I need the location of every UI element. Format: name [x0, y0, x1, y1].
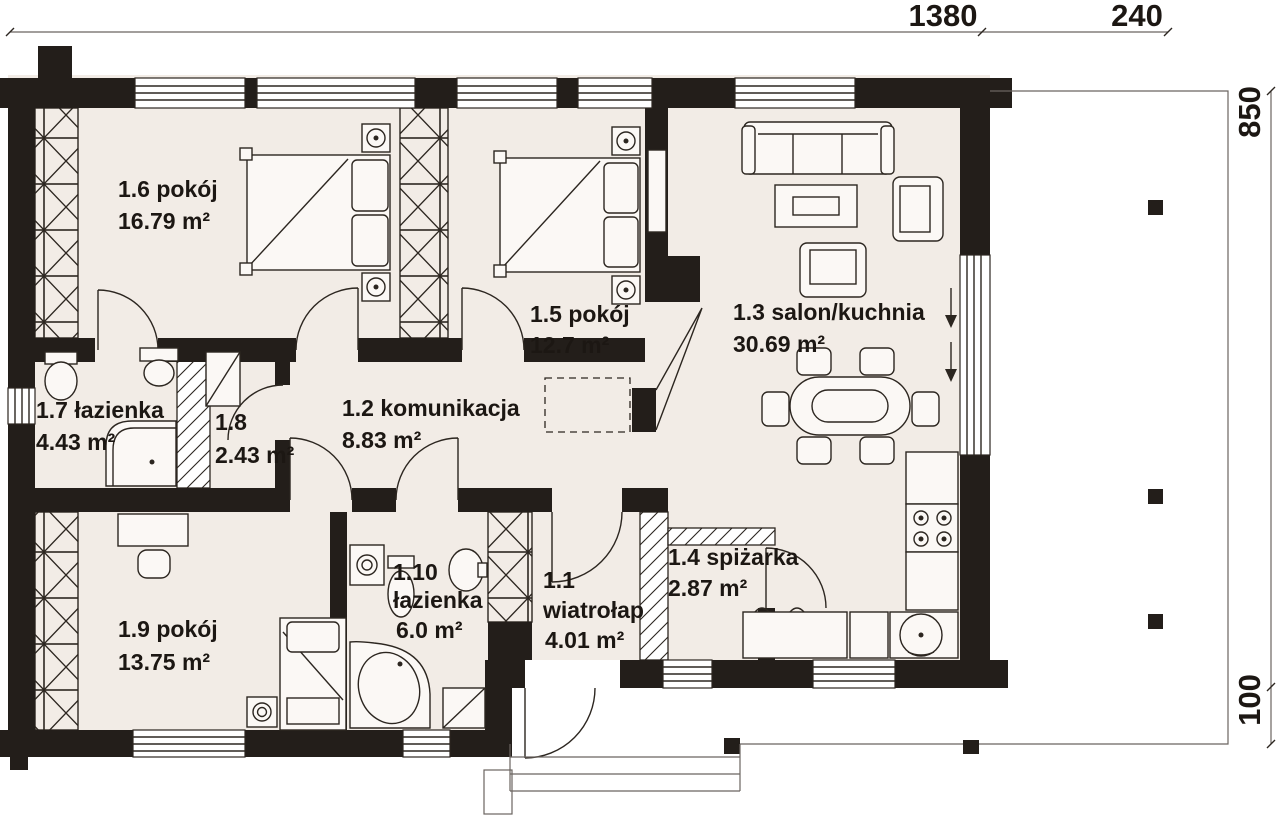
dim-top-porch: 240 — [1111, 0, 1163, 33]
entry-threshold — [525, 660, 620, 688]
stoop-west-wall — [485, 688, 512, 757]
room-area-1-8: 2.43 m² — [215, 442, 295, 468]
dining-chair — [912, 392, 939, 426]
log-stub-sw — [10, 757, 28, 770]
room-area-1-2: 8.83 m² — [342, 427, 422, 453]
stove — [906, 504, 958, 552]
floor-plan-canvas: 1380 240 850 100 1.6 pokój 16.79 m² 1.5 … — [0, 0, 1280, 818]
opening-stub — [632, 388, 656, 432]
floor-plan-page: 1380 240 850 100 1.6 pokój 16.79 m² 1.5 … — [0, 0, 1280, 818]
room-area-1-3: 30.69 m² — [733, 331, 825, 357]
porch-post — [1148, 200, 1163, 215]
coffee-table — [775, 185, 857, 227]
nightstand — [247, 697, 277, 727]
room-label-1-10: 1.10 — [393, 559, 438, 585]
chimney-wiatrolap — [488, 622, 532, 660]
toilet — [45, 352, 77, 400]
dim-top-main: 1380 — [909, 0, 978, 33]
room-label-1-4: 1.4 spiżarka — [668, 544, 799, 570]
shower — [106, 421, 176, 486]
window — [457, 78, 557, 108]
washbasin — [140, 348, 178, 386]
door-arc — [525, 688, 595, 758]
shelf — [206, 352, 240, 406]
window — [960, 255, 990, 455]
sofa — [742, 122, 894, 174]
partition-1-4-north — [668, 528, 775, 545]
window — [813, 660, 895, 688]
room-area-1-9: 13.75 m² — [118, 649, 210, 675]
window — [735, 78, 855, 108]
wardrobe — [648, 150, 666, 232]
stoop-post — [963, 740, 979, 754]
stoop-post — [724, 738, 740, 754]
wall-lining-nw — [35, 108, 78, 338]
armchair — [893, 177, 943, 241]
room-area-1-7: 4.43 m² — [36, 429, 116, 455]
room-label-1-2: 1.2 komunikacja — [342, 395, 520, 421]
entry-steps — [484, 744, 740, 814]
window — [578, 78, 652, 108]
nightstand — [612, 127, 640, 155]
porch-post — [1148, 614, 1163, 629]
window — [403, 730, 450, 757]
room-label-1-8: 1.8 — [215, 409, 247, 435]
nightstand — [362, 273, 390, 301]
dim-right-porch: 100 — [1232, 674, 1267, 726]
room-name-1-10: łazienka — [393, 587, 483, 613]
cabinet — [443, 688, 485, 728]
window — [135, 78, 245, 108]
partition-1-10-1-1 — [488, 512, 532, 622]
room-area-1-1: 4.01 m² — [545, 627, 625, 653]
room-label-1-5: 1.5 pokój — [530, 301, 630, 327]
room-area-1-4: 2.87 m² — [668, 575, 748, 601]
partition-1-7-1-8 — [177, 347, 210, 488]
partition-1-1-1-4 — [640, 512, 668, 660]
washing-machine — [350, 545, 384, 585]
log-stub-nw — [38, 46, 72, 80]
wall-lining-sw — [35, 512, 78, 730]
dim-right-main: 850 — [1232, 86, 1267, 138]
room-area-1-6: 16.79 m² — [118, 208, 210, 234]
dining-table — [790, 377, 910, 435]
room-label-1-6: 1.6 pokój — [118, 176, 218, 202]
dining-chair — [762, 392, 789, 426]
room-name-1-1: wiatrołap — [542, 597, 644, 623]
window — [663, 660, 712, 688]
room-area-1-5: 12.7 m² — [530, 332, 610, 358]
partition-1-6-1-5 — [400, 108, 448, 338]
room-label-1-7: 1.7 łazienka — [36, 397, 164, 423]
window — [133, 730, 245, 757]
nightstand — [612, 276, 640, 304]
dining-chair — [860, 437, 894, 464]
room-label-1-3: 1.3 salon/kuchnia — [733, 299, 925, 325]
window — [257, 78, 415, 108]
window — [8, 388, 35, 424]
dining-chair — [860, 348, 894, 375]
chimney-salon — [668, 256, 700, 302]
nightstand — [362, 124, 390, 152]
kitchen-sink — [890, 612, 958, 658]
dining-chair — [797, 437, 831, 464]
porch-post — [1148, 489, 1163, 504]
single-bed — [280, 618, 346, 730]
room-label-1-1: 1.1 — [543, 567, 575, 593]
room-area-1-10: 6.0 m² — [396, 617, 463, 643]
room-label-1-9: 1.9 pokój — [118, 616, 218, 642]
armchair — [800, 243, 866, 297]
